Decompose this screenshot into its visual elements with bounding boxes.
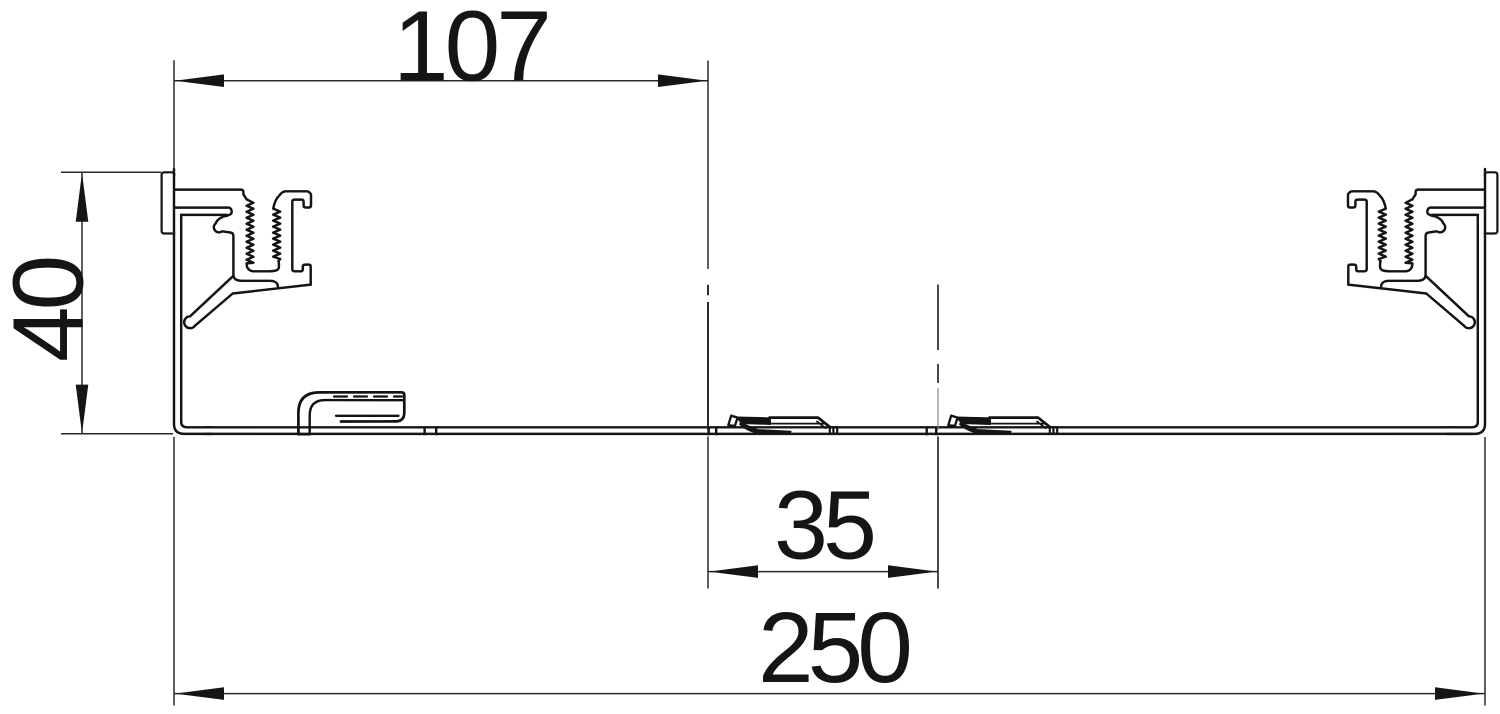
svg-text:107: 107 (393, 0, 548, 103)
svg-text:40: 40 (0, 258, 105, 362)
svg-text:250: 250 (758, 592, 909, 704)
svg-text:35: 35 (774, 470, 873, 579)
